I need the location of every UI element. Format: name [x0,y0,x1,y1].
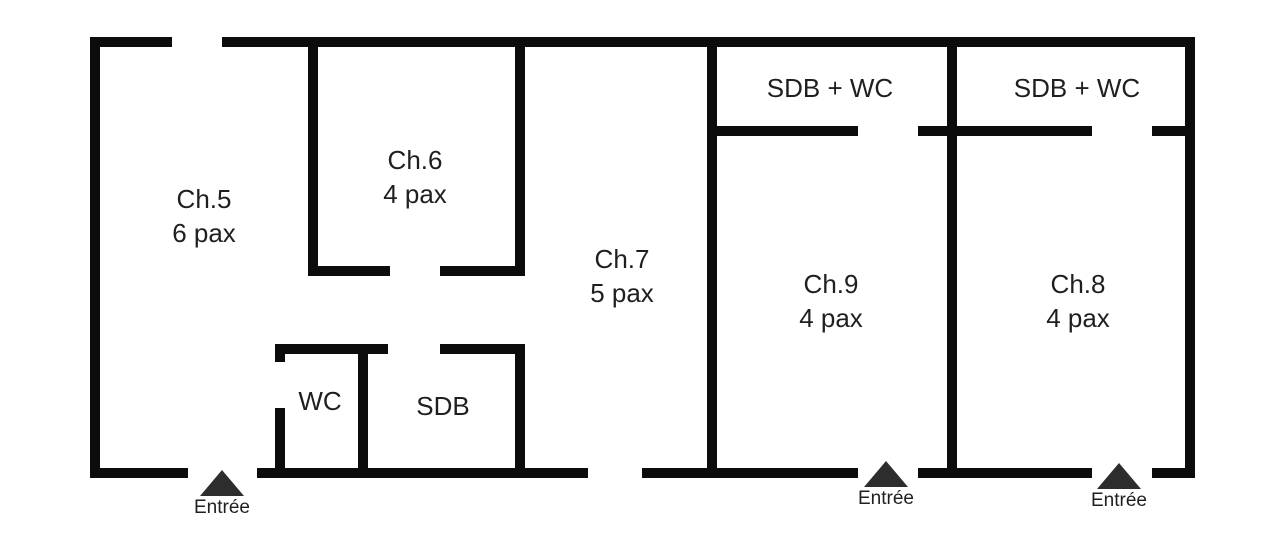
room-label-ch6: Ch.6 4 pax [383,143,447,211]
wall-bottom-segment-2 [257,468,588,478]
wall-top-left-segment [90,37,172,47]
entrance-arrow-icon [1097,463,1141,489]
wall-wc-left-stub-bottom [275,408,285,478]
wall-wc-left-stub-top [275,344,285,362]
room-label-wc: WC [298,386,341,416]
room-name-ch7: Ch.7 [590,242,654,276]
room-label-bathroom-ch9: SDB + WC [767,73,893,103]
room-name-ch6: Ch.6 [383,143,447,177]
entrance-marker-ch8: Entrée [1091,463,1147,512]
room-capacity-ch7: 5 pax [590,276,654,310]
wall-ch7-ch9-divider [707,37,717,478]
room-label-ch8: Ch.8 4 pax [1046,267,1110,335]
room-capacity-ch5: 6 pax [172,216,236,250]
wall-left-outer [90,37,100,478]
entrance-arrow-icon [864,461,908,487]
room-capacity-ch9: 4 pax [799,301,863,335]
wall-bottom-segment-1 [90,468,188,478]
room-label-sdb: SDB [416,391,469,421]
room-capacity-ch6: 4 pax [383,177,447,211]
wall-bathroom-mid-bottom [918,126,1092,136]
entrance-marker-main: Entrée [194,470,250,519]
room-name-ch8: Ch.8 [1046,267,1110,301]
room-label-ch7: Ch.7 5 pax [590,242,654,310]
room-name-ch5: Ch.5 [172,182,236,216]
wall-ch6-bottom-left [308,266,390,276]
wall-ch6-bottom-right [440,266,525,276]
wall-bottom-segment-5 [1152,468,1195,478]
wall-bottom-segment-3 [642,468,858,478]
wall-bathroom-ch8-bottom [1152,126,1195,136]
room-label-bathroom-ch8: SDB + WC [1014,73,1140,103]
entrance-label-ch8: Entrée [1091,490,1147,512]
wall-sdb-top [440,344,525,354]
room-label-ch5: Ch.5 6 pax [172,182,236,250]
wall-wc-sdb-divider [358,344,368,478]
wall-ch5-ch6-divider [308,37,318,276]
wall-ch9-ch8-divider [947,37,957,478]
floor-plan: Ch.5 6 pax Ch.6 4 pax Ch.7 5 pax Ch.9 4 … [0,0,1263,537]
room-name-ch9: Ch.9 [799,267,863,301]
entrance-label-main: Entrée [194,497,250,519]
wall-wc-top [275,344,388,354]
room-label-ch9: Ch.9 4 pax [799,267,863,335]
entrance-marker-ch9: Entrée [858,461,914,510]
wall-right-outer [1185,37,1195,478]
room-capacity-ch8: 4 pax [1046,301,1110,335]
entrance-arrow-icon [200,470,244,496]
wall-ch6-right [515,37,525,276]
entrance-label-ch9: Entrée [858,488,914,510]
wall-bathroom-ch9-bottom [707,126,858,136]
wall-sdb-right [515,344,525,478]
wall-bottom-segment-4 [918,468,1092,478]
